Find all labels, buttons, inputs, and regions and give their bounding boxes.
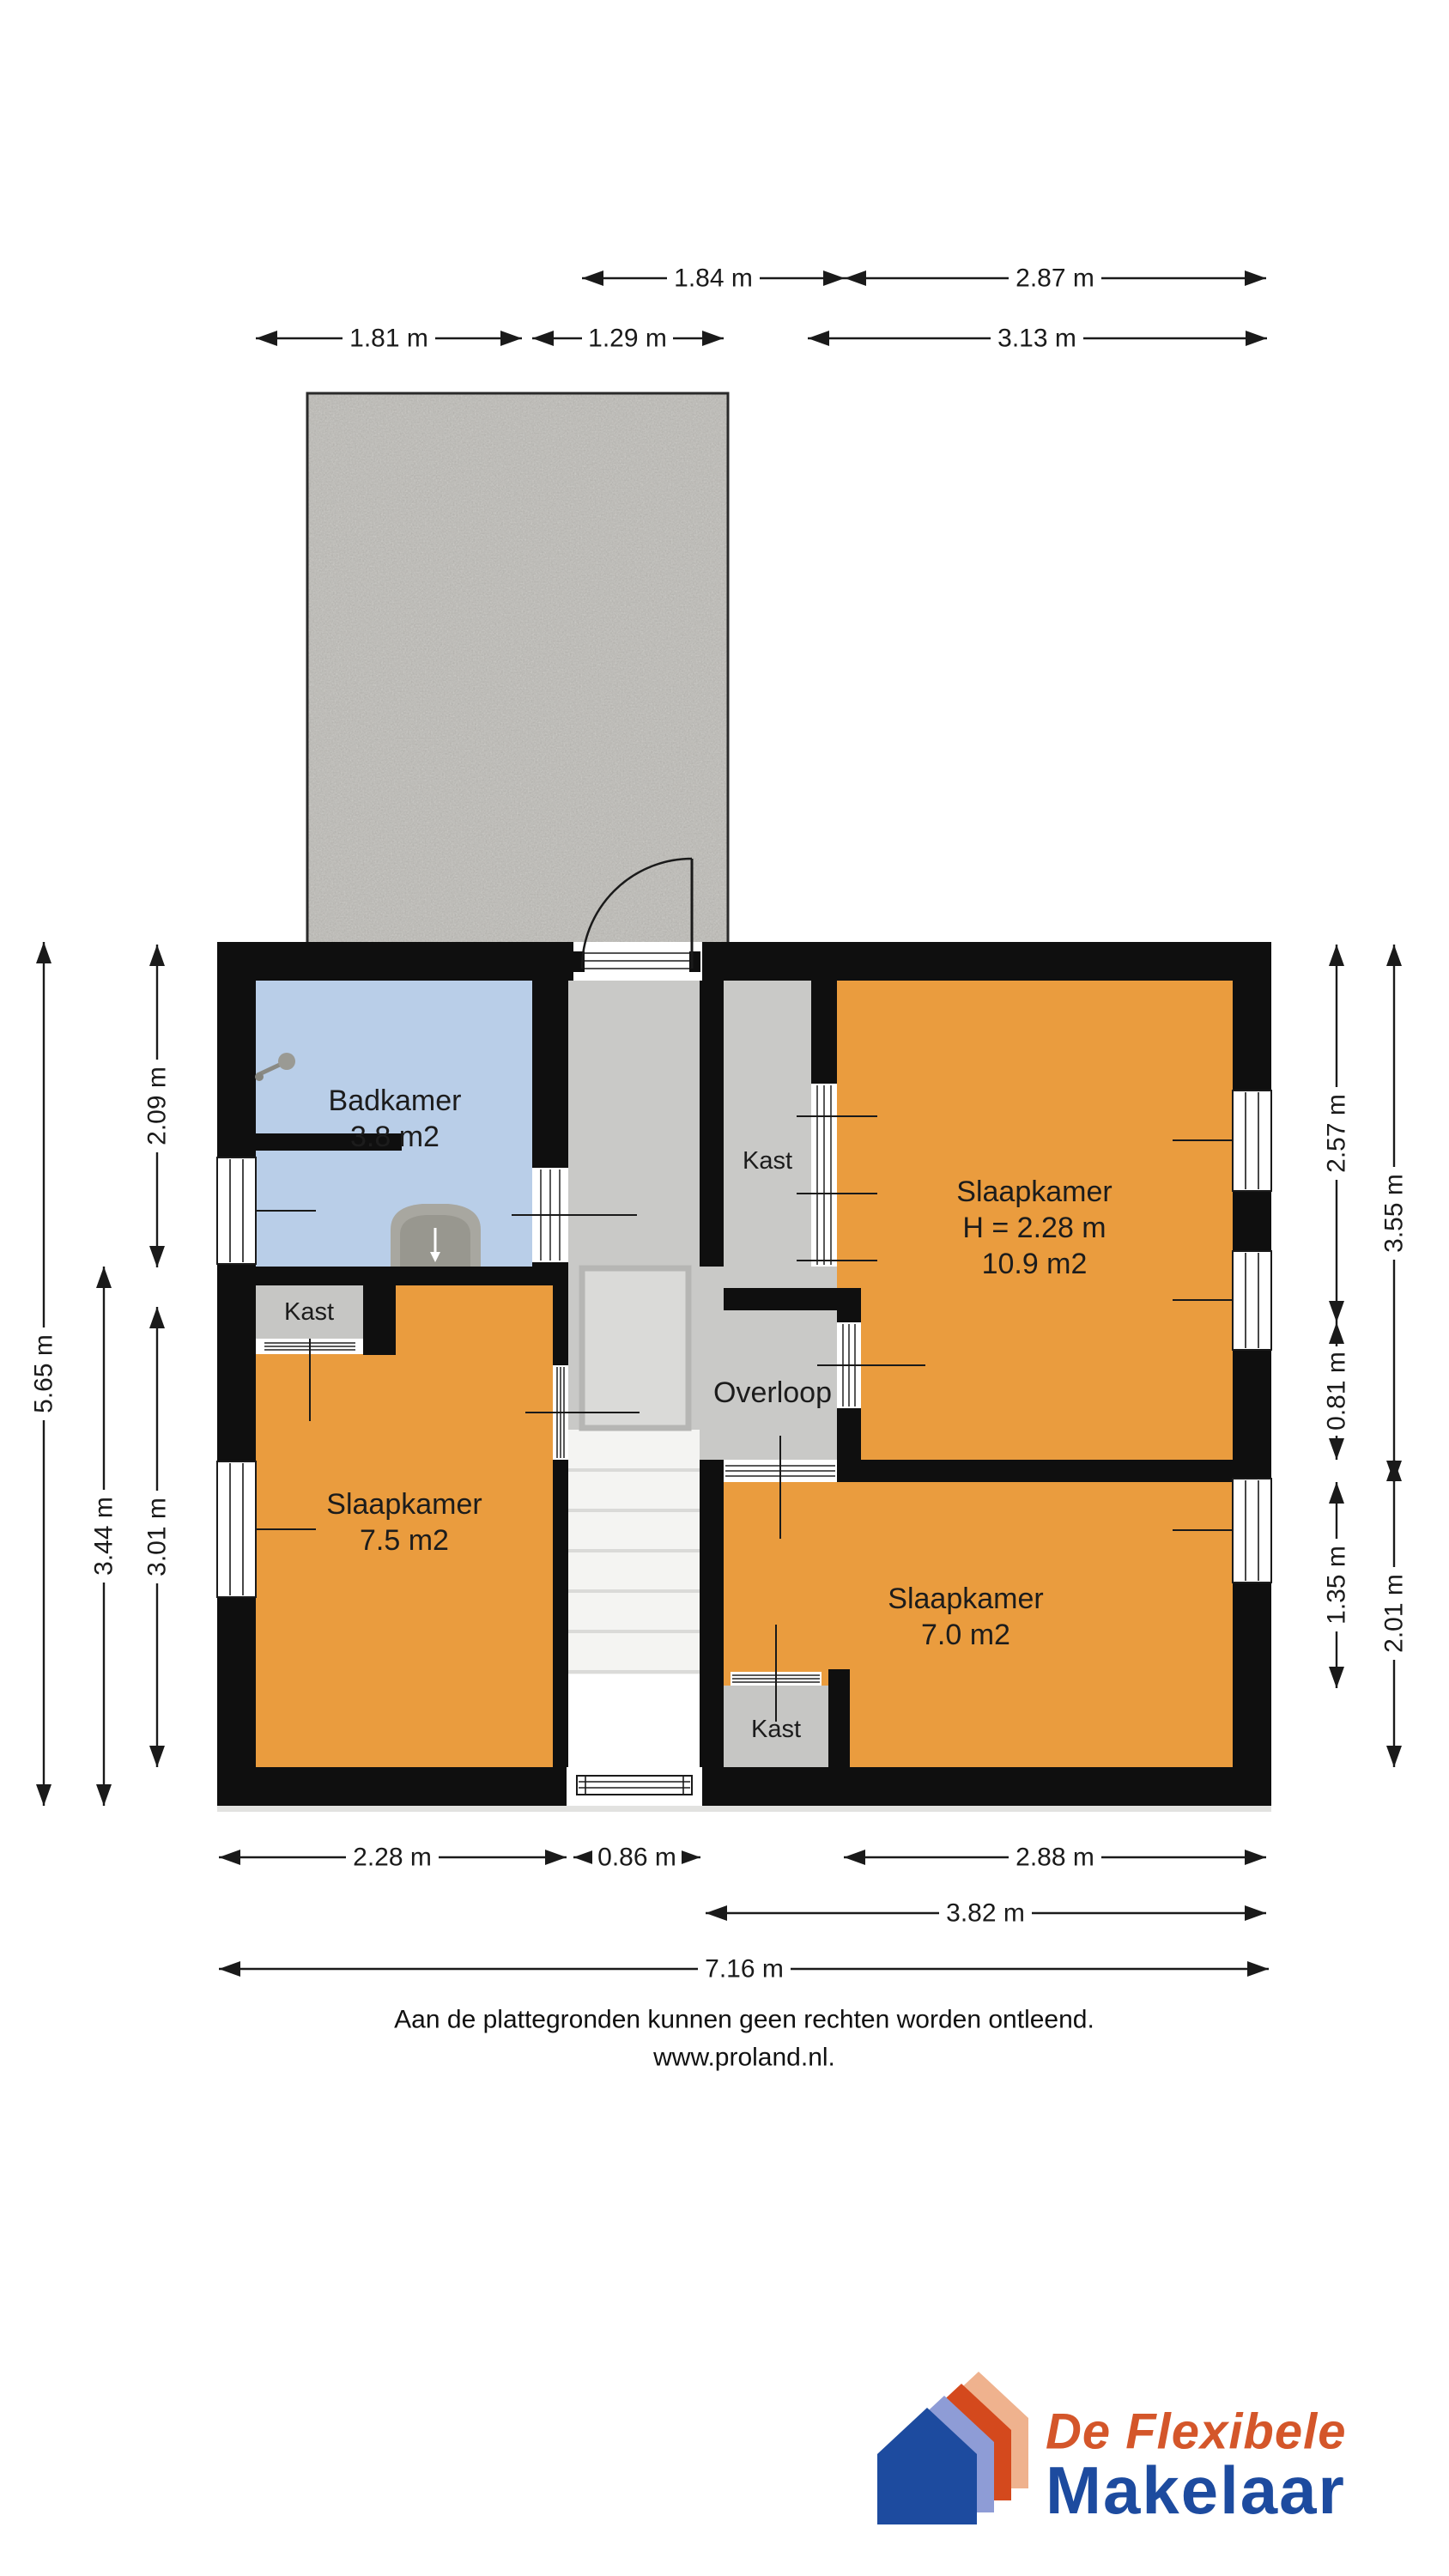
- svg-text:3.44 m: 3.44 m: [90, 1497, 118, 1576]
- svg-text:1.84 m: 1.84 m: [674, 264, 753, 293]
- svg-text:3.01 m: 3.01 m: [143, 1498, 172, 1577]
- svg-text:0.86 m: 0.86 m: [597, 1844, 676, 1872]
- svg-text:2.88 m: 2.88 m: [1016, 1844, 1094, 1872]
- logo: De Flexibele Makelaar: [877, 2372, 1346, 2528]
- dim-left-inner-top: 2.09 m: [142, 945, 173, 1267]
- logo-brand-line2: Makelaar: [1046, 2452, 1346, 2528]
- dim-top-a: 1.84 m: [582, 263, 845, 294]
- label-overloop: Overloop: [713, 1376, 832, 1409]
- staircase: [568, 1430, 700, 1767]
- window-bottom-stairs: [567, 1767, 702, 1806]
- svg-text:3.13 m: 3.13 m: [997, 325, 1076, 353]
- svg-text:2.01 m: 2.01 m: [1380, 1574, 1409, 1653]
- dim-right-outer-top: 3.55 m: [1379, 945, 1410, 1482]
- label-slaapkamer-links-name: Slaapkamer: [326, 1488, 482, 1521]
- dim-top-c: 1.81 m: [256, 323, 522, 354]
- label-badkamer-name: Badkamer: [329, 1084, 462, 1117]
- svg-text:5.65 m: 5.65 m: [30, 1334, 58, 1413]
- dim-bottom-a: 2.28 m: [219, 1842, 567, 1873]
- dim-bottom-c: 2.88 m: [844, 1842, 1266, 1873]
- label-slaapkamer-groot-height: H = 2.28 m: [962, 1212, 1106, 1244]
- dim-right-inner-top: 2.57 m: [1321, 945, 1352, 1322]
- svg-text:2.57 m: 2.57 m: [1323, 1094, 1351, 1173]
- terrace-area: [307, 393, 728, 942]
- dim-top-e: 3.13 m: [808, 323, 1267, 354]
- dim-right-inner-mid: 0.81 m: [1321, 1322, 1352, 1460]
- svg-text:1.35 m: 1.35 m: [1323, 1546, 1351, 1625]
- label-badkamer-area: 3.8 m2: [350, 1121, 440, 1153]
- dim-left-lower: 3.44 m: [88, 1267, 119, 1806]
- dim-bottom-d: 3.82 m: [706, 1898, 1266, 1929]
- dim-left-inner-bottom: 3.01 m: [142, 1307, 173, 1767]
- svg-text:3.82 m: 3.82 m: [946, 1899, 1025, 1928]
- logo-brand-line1: De Flexibele: [1046, 2404, 1346, 2460]
- svg-text:1.29 m: 1.29 m: [588, 325, 667, 353]
- svg-text:2.87 m: 2.87 m: [1016, 264, 1094, 293]
- dim-right-inner-bottom: 1.35 m: [1321, 1482, 1352, 1688]
- svg-text:2.28 m: 2.28 m: [353, 1844, 432, 1872]
- label-slaapkamer-links-area: 7.5 m2: [360, 1524, 449, 1557]
- label-kast-top: Kast: [743, 1147, 792, 1175]
- logo-house-icon: [877, 2372, 1028, 2524]
- label-slaapkamer-rechts-area: 7.0 m2: [921, 1619, 1010, 1651]
- footer-website: www.proland.nl.: [652, 2044, 835, 2072]
- label-kast-links: Kast: [284, 1298, 334, 1326]
- svg-text:1.81 m: 1.81 m: [349, 325, 428, 353]
- svg-text:2.09 m: 2.09 m: [143, 1066, 172, 1145]
- dim-top-b: 2.87 m: [845, 263, 1266, 294]
- plan-drop-shadow: [217, 1806, 1271, 1812]
- label-slaapkamer-rechts-name: Slaapkamer: [888, 1583, 1043, 1615]
- svg-text:0.81 m: 0.81 m: [1323, 1352, 1351, 1431]
- footer-disclaimer: Aan de plattegronden kunnen geen rechten…: [394, 2006, 1094, 2034]
- dim-bottom-b: 0.86 m: [573, 1842, 700, 1873]
- stair-void-skylight: [582, 1268, 688, 1428]
- dim-left-total: 5.65 m: [28, 942, 59, 1806]
- dim-right-outer-bottom: 2.01 m: [1379, 1460, 1410, 1767]
- label-kast-onder: Kast: [751, 1716, 801, 1743]
- svg-text:7.16 m: 7.16 m: [705, 1955, 784, 1984]
- label-slaapkamer-groot-area: 10.9 m2: [982, 1248, 1088, 1280]
- toilet-icon: [391, 1204, 481, 1267]
- dim-bottom-e: 7.16 m: [219, 1953, 1269, 1984]
- label-slaapkamer-groot-name: Slaapkamer: [956, 1176, 1112, 1208]
- dim-top-d: 1.29 m: [532, 323, 724, 354]
- floorplan-page: Badkamer 3.8 m2 Kast Slaapkamer H = 2.28…: [0, 0, 1449, 2576]
- svg-text:3.55 m: 3.55 m: [1380, 1174, 1409, 1253]
